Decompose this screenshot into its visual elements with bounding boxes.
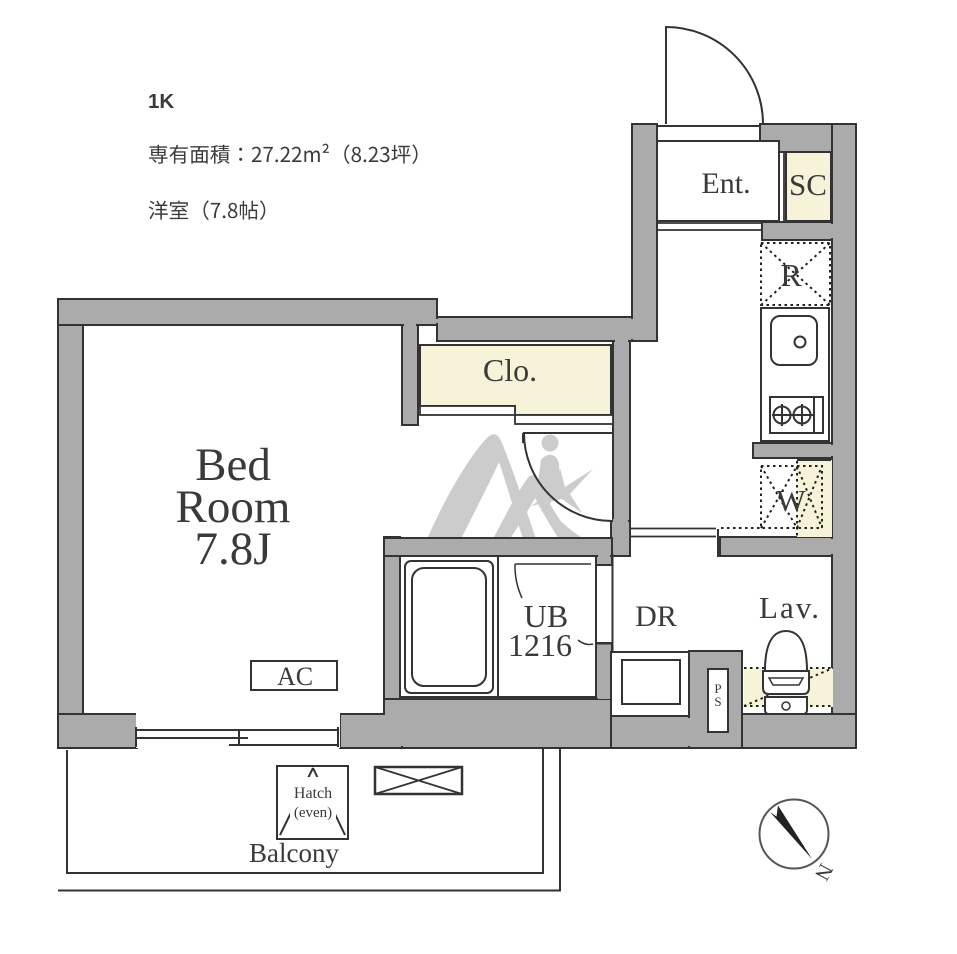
svg-text:Lav.: Lav. [759, 590, 821, 625]
svg-text:(even): (even) [294, 805, 332, 821]
svg-text:1216: 1216 [508, 627, 572, 663]
svg-text:R: R [780, 257, 802, 293]
svg-text:SC: SC [789, 167, 827, 202]
svg-text:S: S [714, 694, 721, 709]
svg-text:Balcony: Balcony [249, 838, 339, 868]
svg-text:Clo.: Clo. [483, 352, 537, 388]
svg-text:AC: AC [277, 662, 313, 691]
svg-text:Hatch: Hatch [294, 785, 332, 802]
svg-text:Ent.: Ent. [701, 167, 750, 200]
svg-text:W: W [776, 483, 806, 518]
svg-text:1K: 1K [148, 90, 174, 113]
svg-text:7.8J: 7.8J [194, 523, 271, 575]
svg-text:DR: DR [635, 600, 677, 633]
